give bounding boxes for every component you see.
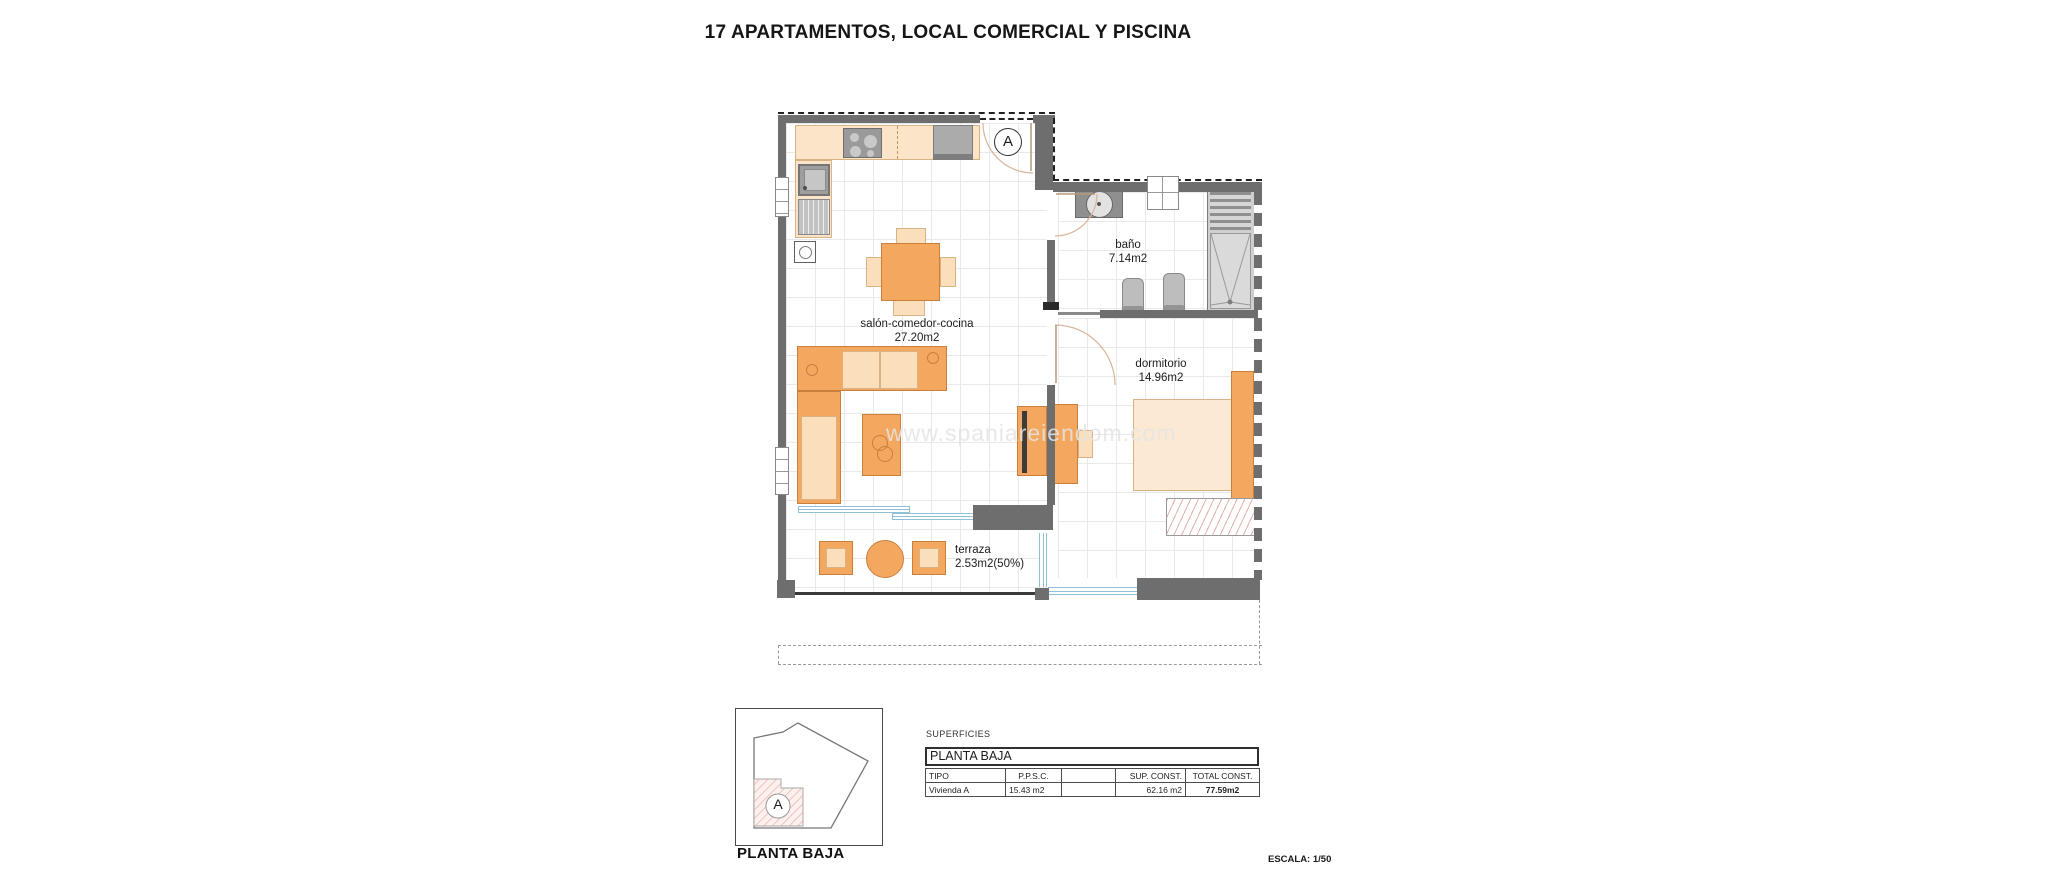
wall-bath-top-b bbox=[1177, 182, 1262, 192]
scale-label: ESCALA: 1/50 bbox=[1268, 854, 1331, 865]
wall-corridor bbox=[1047, 240, 1055, 310]
wall-bath-top-a bbox=[1053, 182, 1148, 192]
floor-plan: A salón-comedor-cocina 27.20m2 baño 7.14… bbox=[770, 108, 1270, 680]
wall-party-right bbox=[1254, 192, 1262, 580]
cell-sup-const: 62.16 m2 bbox=[1116, 783, 1186, 797]
entry-threshold-dash bbox=[980, 118, 1033, 120]
room-name: baño bbox=[1078, 239, 1178, 253]
room-label-bedroom: dormitorio 14.96m2 bbox=[1086, 358, 1236, 385]
terrace-end-block-left bbox=[777, 580, 795, 598]
col-header: TIPO bbox=[926, 769, 1006, 783]
page-title: 17 APARTAMENTOS, LOCAL COMERCIAL Y PISCI… bbox=[648, 22, 1248, 44]
cell-total-const: 77.59m2 bbox=[1186, 783, 1260, 797]
surfaces-table: TIPO P.P.S.C. SUP. CONST. TOTAL CONST. V… bbox=[925, 768, 1260, 797]
terrace-end-block-right bbox=[1035, 588, 1049, 600]
surfaces-section-label: SUPERFICIES bbox=[926, 729, 990, 739]
key-plan-caption: PLANTA BAJA bbox=[737, 845, 844, 862]
key-plan: A bbox=[735, 708, 883, 846]
surfaces-data-row: Vivienda A 15.43 m2 62.16 m2 77.59m2 bbox=[926, 783, 1260, 797]
room-label-terrace: terraza 2.53m2(50%) bbox=[955, 544, 1075, 571]
room-area: 27.20m2 bbox=[817, 332, 1017, 346]
room-area: 14.96m2 bbox=[1086, 372, 1236, 386]
cell-ppsc: 15.43 m2 bbox=[1006, 783, 1062, 797]
cell-tipo: Vivienda A bbox=[926, 783, 1006, 797]
key-plan-outline bbox=[736, 709, 882, 845]
window-bathroom bbox=[1147, 176, 1179, 210]
cell-empty bbox=[1062, 783, 1116, 797]
plot-boundary-dash-2 bbox=[778, 664, 1262, 665]
floorplan-page: { "title": "17 APARTAMENTOS, LOCAL COMER… bbox=[0, 0, 2048, 880]
unit-marker-label: A bbox=[1003, 133, 1013, 150]
plot-boundary-dash-1 bbox=[778, 645, 1262, 646]
wall-bottom-right-mass bbox=[1137, 578, 1260, 600]
surfaces-header-row: TIPO P.P.S.C. SUP. CONST. TOTAL CONST. bbox=[926, 769, 1260, 783]
plot-boundary-dash-right bbox=[1259, 600, 1260, 664]
exterior-dash-top bbox=[778, 112, 1055, 114]
terrace-edge-line bbox=[792, 592, 1037, 595]
room-area: 2.53m2(50%) bbox=[955, 558, 1075, 572]
wall-partition-thin bbox=[1058, 312, 1100, 315]
unit-marker: A bbox=[994, 128, 1022, 156]
wall-corridor-cap bbox=[1043, 302, 1059, 310]
room-area: 7.14m2 bbox=[1078, 253, 1178, 267]
wall-bath-bedroom-partition bbox=[1100, 310, 1258, 318]
key-plan-unit-label: A bbox=[773, 796, 782, 812]
col-header: P.P.S.C. bbox=[1006, 769, 1062, 783]
window-terrace-left bbox=[775, 447, 789, 495]
room-label-living: salón-comedor-cocina 27.20m2 bbox=[817, 318, 1017, 345]
wall-top-a bbox=[778, 115, 980, 123]
wall-terrace-stub bbox=[973, 505, 1053, 530]
surfaces-floor-label: PLANTA BAJA bbox=[925, 747, 1259, 766]
window-living-left bbox=[775, 177, 789, 217]
room-name: dormitorio bbox=[1086, 358, 1236, 372]
key-plan-unit-marker: A bbox=[766, 794, 790, 818]
plot-boundary-dash-left bbox=[778, 645, 779, 664]
room-name: salón-comedor-cocina bbox=[817, 318, 1017, 332]
room-name: terraza bbox=[955, 544, 1075, 558]
col-header bbox=[1062, 769, 1116, 783]
col-header: SUP. CONST. bbox=[1116, 769, 1186, 783]
room-label-bathroom: baño 7.14m2 bbox=[1078, 239, 1178, 266]
watermark: www.spaniareiendom.com bbox=[886, 420, 1176, 447]
col-header: TOTAL CONST. bbox=[1186, 769, 1260, 783]
wall-entry-side bbox=[1035, 118, 1053, 190]
